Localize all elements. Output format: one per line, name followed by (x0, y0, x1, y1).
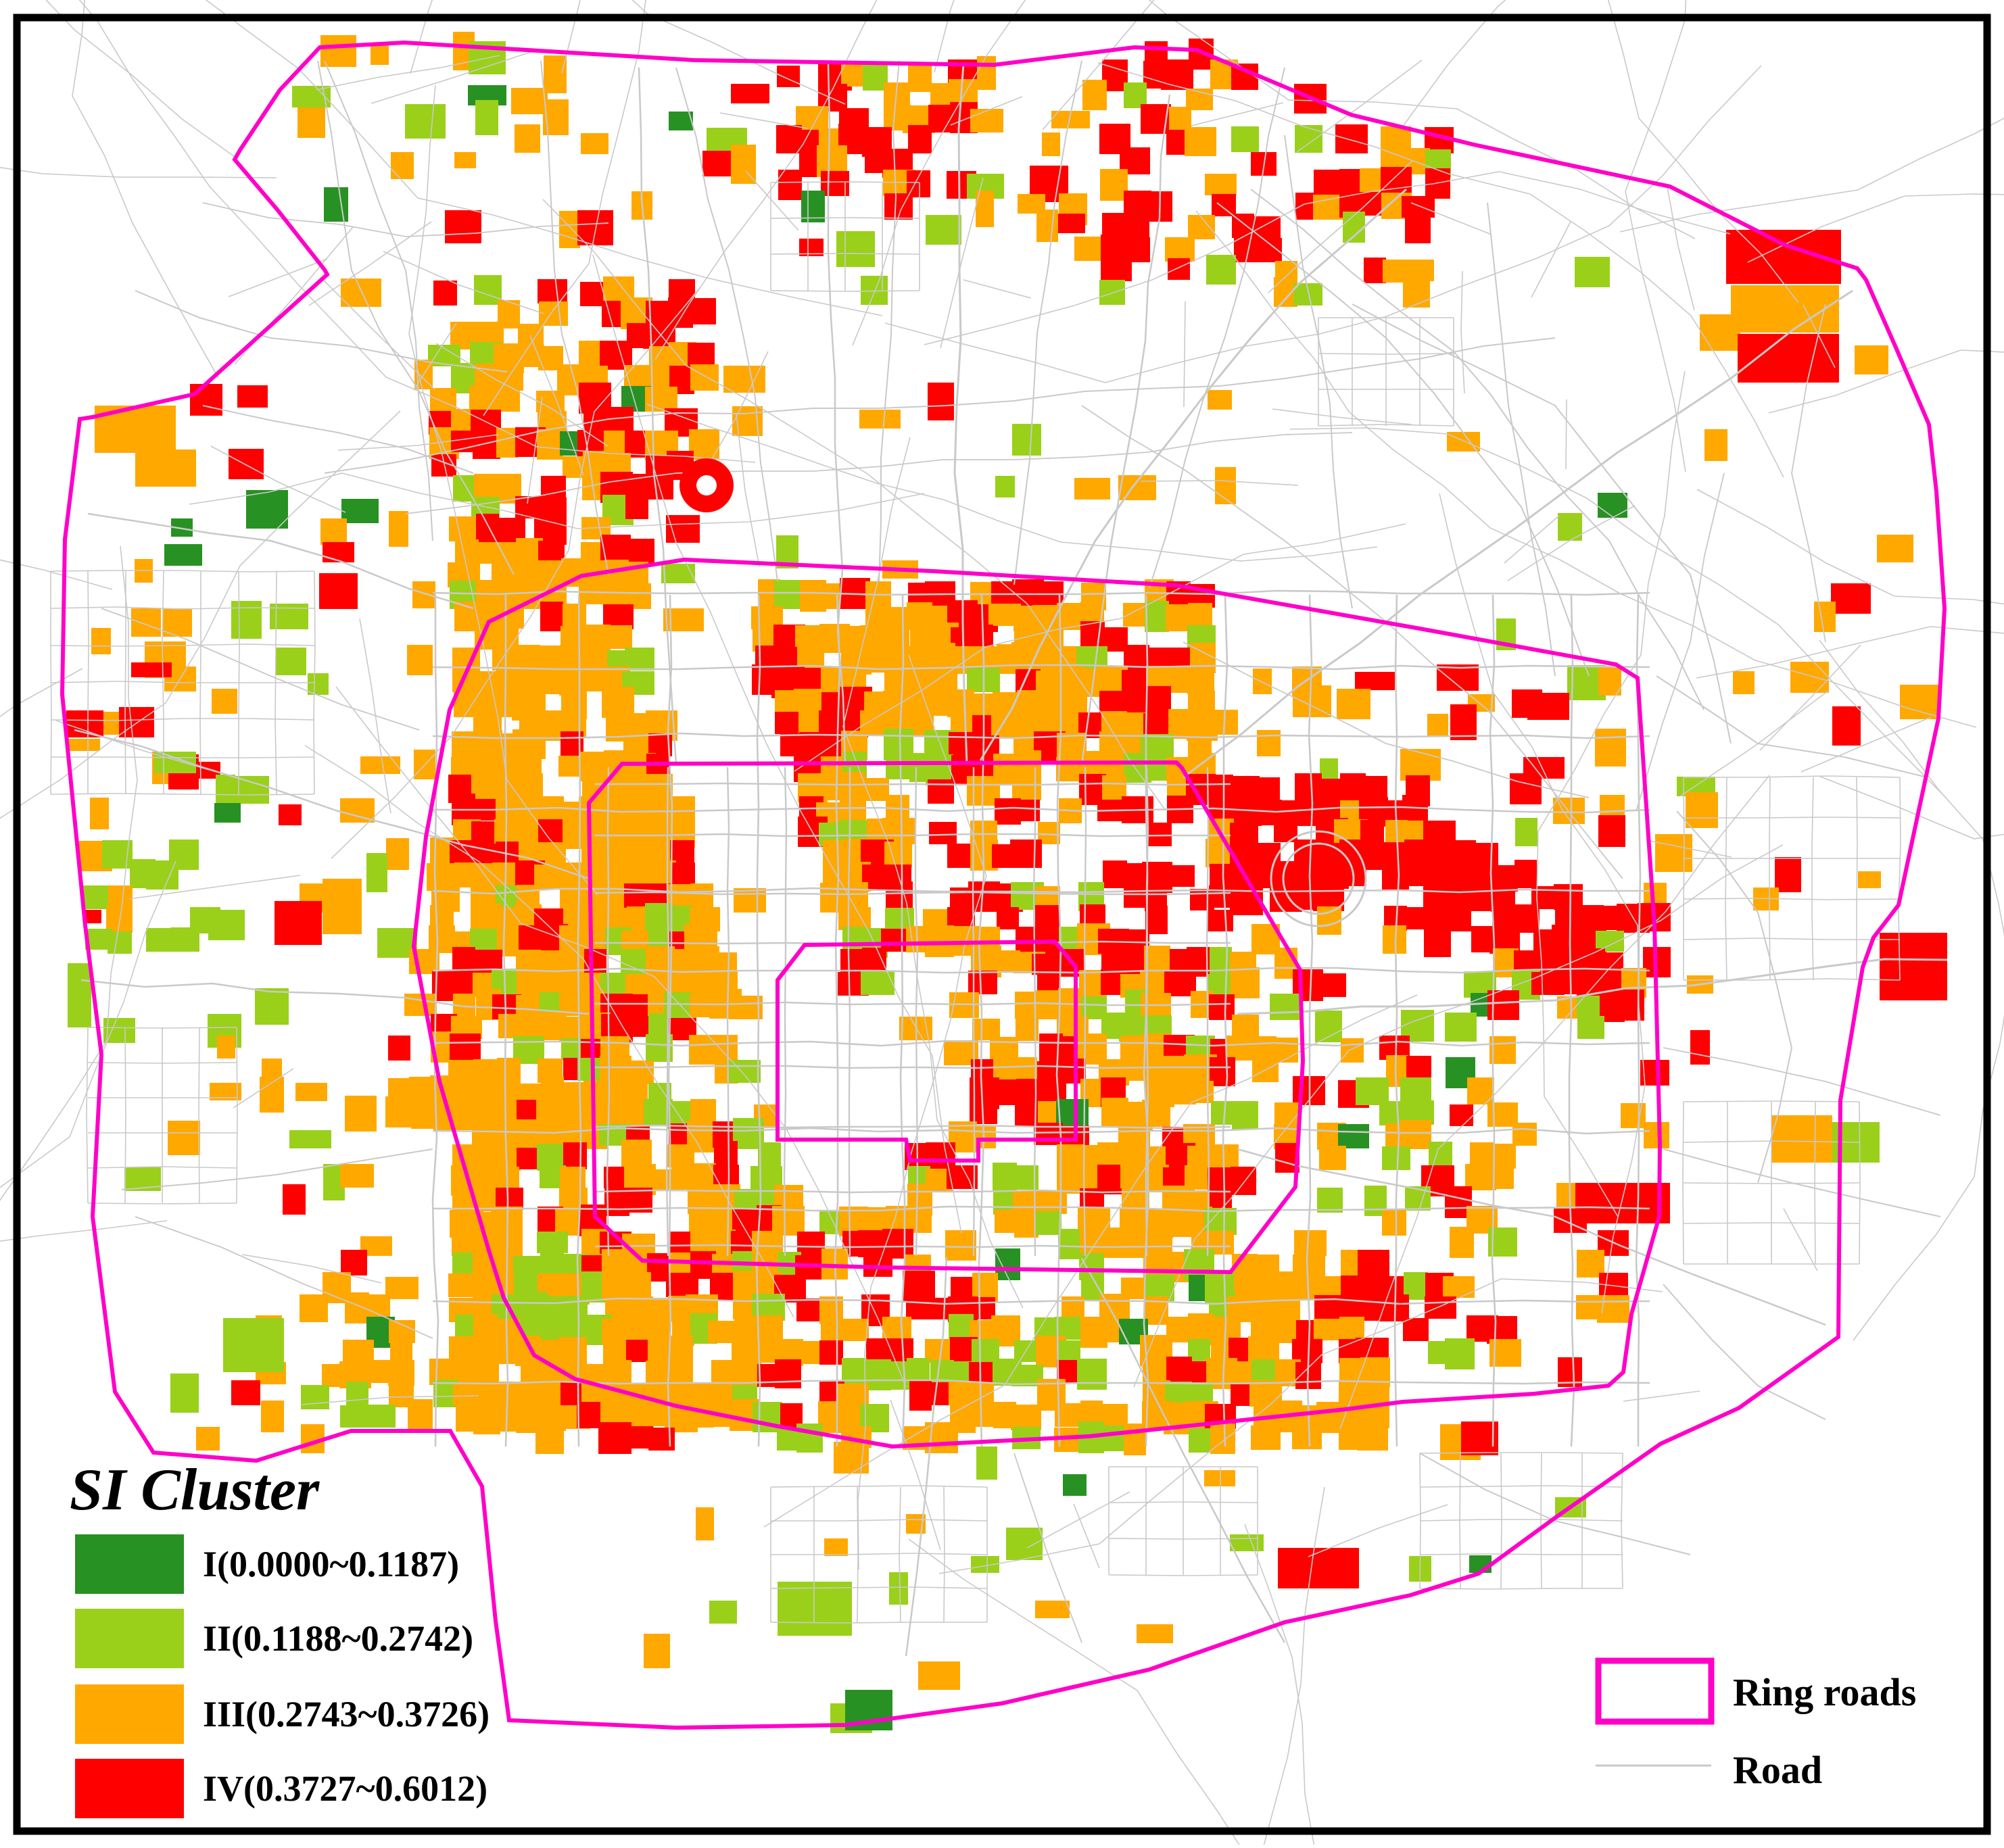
svg-text:I(0.0000~0.1187): I(0.0000~0.1187) (203, 1544, 459, 1584)
svg-text:Ring roads: Ring roads (1733, 1670, 1916, 1714)
svg-text:SI Cluster: SI Cluster (70, 1457, 320, 1523)
svg-text:IV(0.3727~0.6012): IV(0.3727~0.6012) (203, 1768, 487, 1809)
svg-text:Road: Road (1733, 1748, 1822, 1792)
svg-text:III(0.2743~0.3726): III(0.2743~0.3726) (203, 1694, 490, 1734)
svg-text:II(0.1188~0.2742): II(0.1188~0.2742) (203, 1618, 473, 1659)
